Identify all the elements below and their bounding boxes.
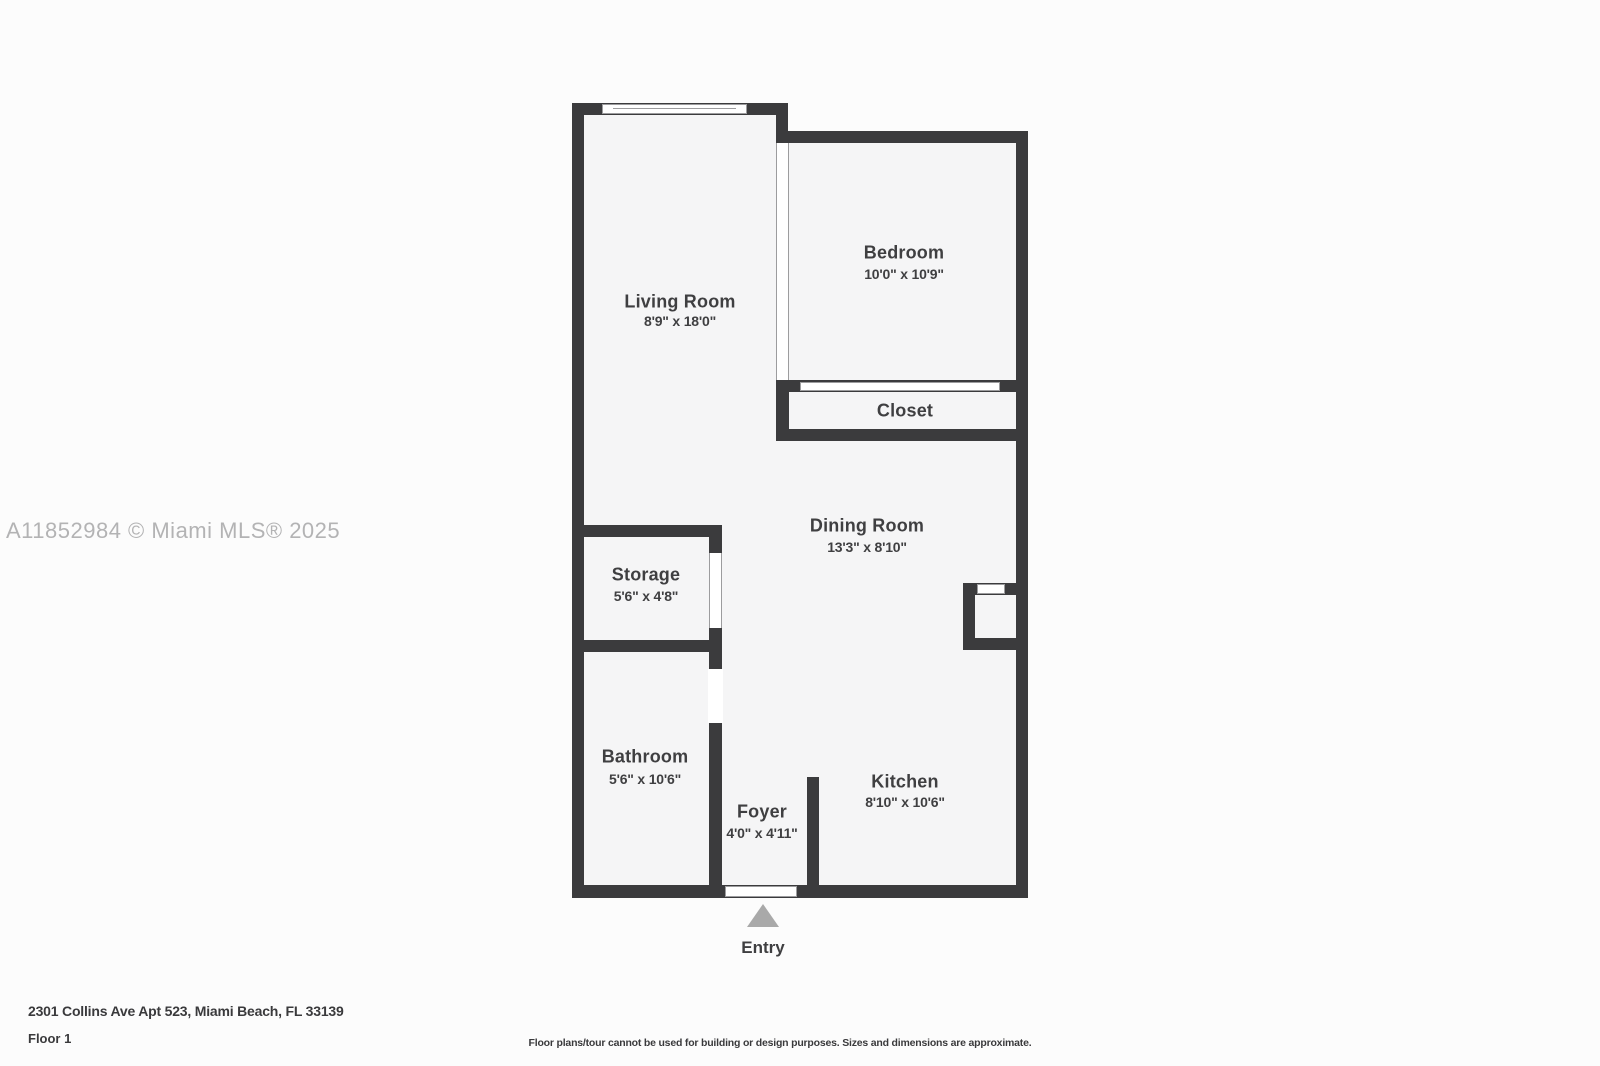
room-dims-foyer: 4'0" x 4'11" [726, 825, 797, 841]
living-bedroom-partition-icon [776, 143, 789, 380]
room-label-bedroom: Bedroom [864, 243, 944, 264]
disclaimer-text: Floor plans/tour cannot be used for buil… [529, 1037, 1032, 1049]
wall-kitchen-foyer-divider [807, 777, 819, 887]
room-label-kitchen: Kitchen [871, 772, 938, 793]
room-dims-bathroom: 5'6" x 10'6" [609, 771, 681, 787]
room-label-living-room: Living Room [624, 292, 735, 313]
entry-label: Entry [741, 938, 784, 958]
floor-plan: Living Room 8'9" x 18'0" Bedroom 10'0" x… [0, 0, 1600, 1066]
wall-storage-bottom [572, 640, 722, 652]
wall-right [1016, 131, 1028, 898]
floor-plan-page: A11852984 © Miami MLS® 2025 [0, 0, 1600, 1066]
room-dims-kitchen: 8'10" x 10'6" [865, 794, 945, 810]
floor-number-text: Floor 1 [28, 1031, 71, 1046]
closet-door-icon [800, 382, 1000, 391]
address-text: 2301 Collins Ave Apt 523, Miami Beach, F… [28, 1003, 344, 1019]
bathroom-door-opening [708, 669, 723, 723]
wall-storage-top [572, 525, 722, 537]
room-dims-bedroom: 10'0" x 10'9" [864, 266, 944, 282]
entry-arrow-icon [747, 904, 779, 927]
room-dims-dining-room: 13'3" x 8'10" [827, 539, 907, 555]
wall-bedroom-top [776, 131, 1028, 143]
entry-door-opening [725, 886, 797, 897]
wall-utility-bottom [963, 638, 1028, 650]
wall-left [572, 103, 584, 898]
window-midline [613, 108, 736, 109]
living-room-window-icon [602, 104, 747, 114]
room-label-foyer: Foyer [737, 802, 787, 823]
wall-bottom [572, 885, 1028, 898]
room-label-closet: Closet [877, 401, 933, 422]
room-label-storage: Storage [612, 565, 680, 586]
wall-closet-bottom [776, 429, 1028, 441]
room-dims-living-room: 8'9" x 18'0" [644, 313, 716, 329]
room-label-bathroom: Bathroom [602, 747, 689, 768]
room-label-dining-room: Dining Room [810, 516, 924, 537]
storage-door-icon [709, 553, 722, 628]
room-dims-storage: 5'6" x 4'8" [614, 588, 678, 604]
utility-door-icon [977, 584, 1005, 594]
